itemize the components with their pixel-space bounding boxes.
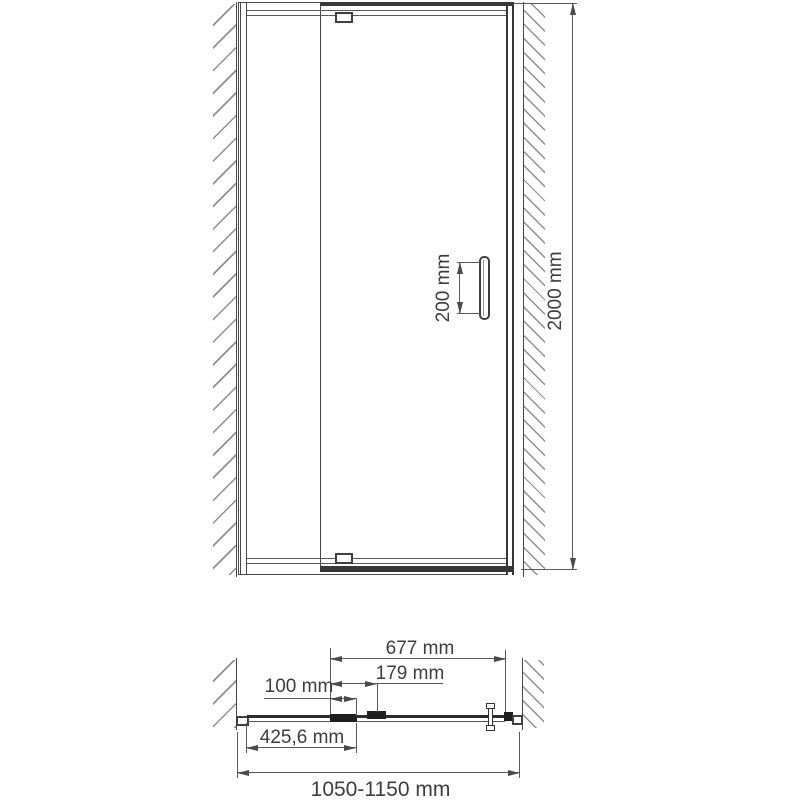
arrow-left-icon — [330, 656, 342, 662]
top-rail — [247, 10, 506, 16]
left-wall-line — [236, 2, 237, 577]
overlap-ext-right-upper — [356, 698, 357, 716]
plan-view: 677 mm 179 mm 100 mm 425,6 mm 1050-1150 … — [0, 620, 800, 800]
arrow-right-icon — [344, 696, 356, 702]
dim-label-hinge-offset: 179 mm — [365, 664, 455, 684]
door-right-stile — [506, 2, 514, 575]
dim-label-overall-height: 2000 mm — [546, 246, 566, 336]
plan-handle-stem — [488, 708, 493, 726]
plan-panel-overlap-profile — [330, 714, 357, 722]
door-handle-highlight — [483, 260, 484, 316]
bottom-rail — [247, 558, 506, 564]
overall-width-dim-line — [237, 772, 520, 773]
arrow-right-icon — [508, 770, 520, 776]
dim-label-handle-length: 200 mm — [434, 248, 454, 328]
shower-door-technical-drawing: 200 mm 2000 mm 677 mm — [0, 0, 800, 800]
door-handle — [479, 256, 490, 320]
fixed-panel-divider — [320, 5, 321, 570]
door-bottom-profile — [320, 566, 514, 572]
height-dim-ext-top — [514, 3, 577, 4]
arrow-down-icon — [457, 302, 463, 314]
height-dim-ext-bottom — [521, 569, 577, 570]
plan-left-wall-hatch — [213, 660, 236, 728]
arrow-up-icon — [570, 3, 576, 15]
overlap-dim-line — [264, 698, 356, 699]
plan-handle-cap-bottom — [486, 725, 495, 731]
dim-label-overall-width: 1050-1150 mm — [308, 780, 453, 800]
dim-label-overlap: 100 mm — [254, 677, 344, 697]
hinge-offset-ext-right — [377, 683, 378, 712]
right-wall-hatch — [524, 4, 545, 575]
frame-outline — [238, 2, 514, 575]
door-top-profile — [320, 2, 514, 6]
arrow-left-icon — [237, 770, 249, 776]
arrow-down-icon — [570, 558, 576, 570]
left-wall-profile — [240, 2, 247, 575]
plan-pivot-block — [367, 711, 386, 719]
arrow-up-icon — [457, 262, 463, 274]
dim-label-fixed-panel: 425,6 mm — [256, 728, 348, 748]
dim-label-door-width: 677 mm — [375, 639, 465, 659]
plan-right-wall-profile — [512, 715, 523, 725]
right-wall-line — [523, 2, 524, 577]
elevation-view: 200 mm 2000 mm — [0, 0, 800, 620]
top-hinge-clip — [335, 12, 353, 23]
overlap-ext-right-lower — [356, 723, 357, 753]
height-dim-line — [572, 4, 573, 569]
left-wall-hatch — [213, 4, 236, 575]
plan-right-wall-hatch — [523, 660, 544, 728]
arrow-right-icon — [494, 656, 506, 662]
bottom-hinge-clip — [335, 553, 353, 564]
